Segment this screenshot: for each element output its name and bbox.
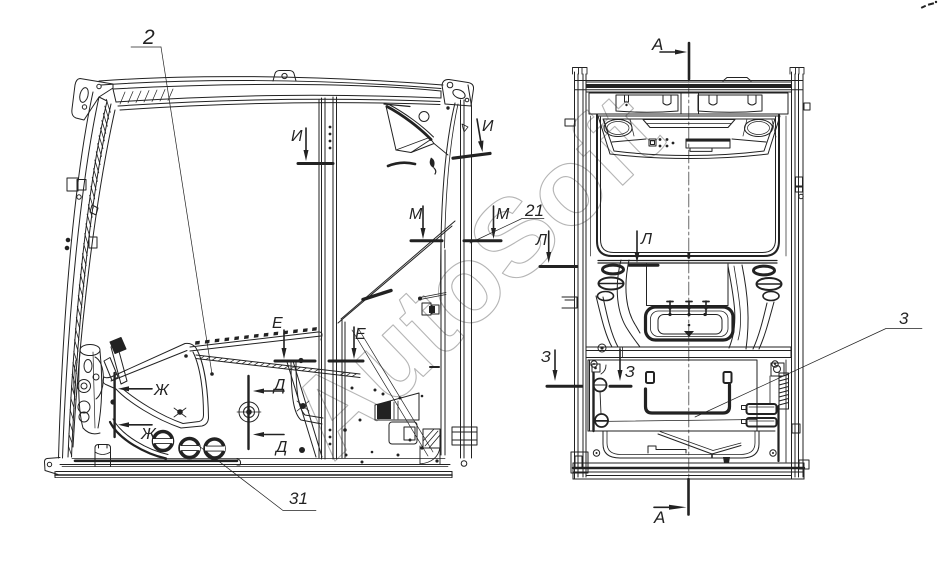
svg-text:З: З xyxy=(541,349,551,366)
svg-text:3: 3 xyxy=(899,309,909,328)
svg-text:21: 21 xyxy=(524,201,544,220)
svg-text:А: А xyxy=(651,35,663,54)
svg-text:Е: Е xyxy=(272,315,283,332)
svg-text:М: М xyxy=(409,206,423,223)
svg-text:2: 2 xyxy=(142,26,155,49)
svg-text:Ж: Ж xyxy=(140,426,157,443)
svg-text:З: З xyxy=(625,364,635,381)
svg-text:М: М xyxy=(496,206,510,223)
svg-text:AutoSoft: AutoSoft xyxy=(264,70,684,480)
svg-text:Л: Л xyxy=(535,232,547,249)
svg-text:Ж: Ж xyxy=(153,382,170,399)
svg-text:Д: Д xyxy=(274,439,287,456)
svg-text:Е: Е xyxy=(355,326,366,343)
svg-text:И: И xyxy=(291,128,303,145)
svg-text:И: И xyxy=(482,118,494,135)
svg-text:31: 31 xyxy=(289,489,308,508)
svg-text:Л: Л xyxy=(640,231,652,248)
svg-text:А: А xyxy=(653,508,665,527)
